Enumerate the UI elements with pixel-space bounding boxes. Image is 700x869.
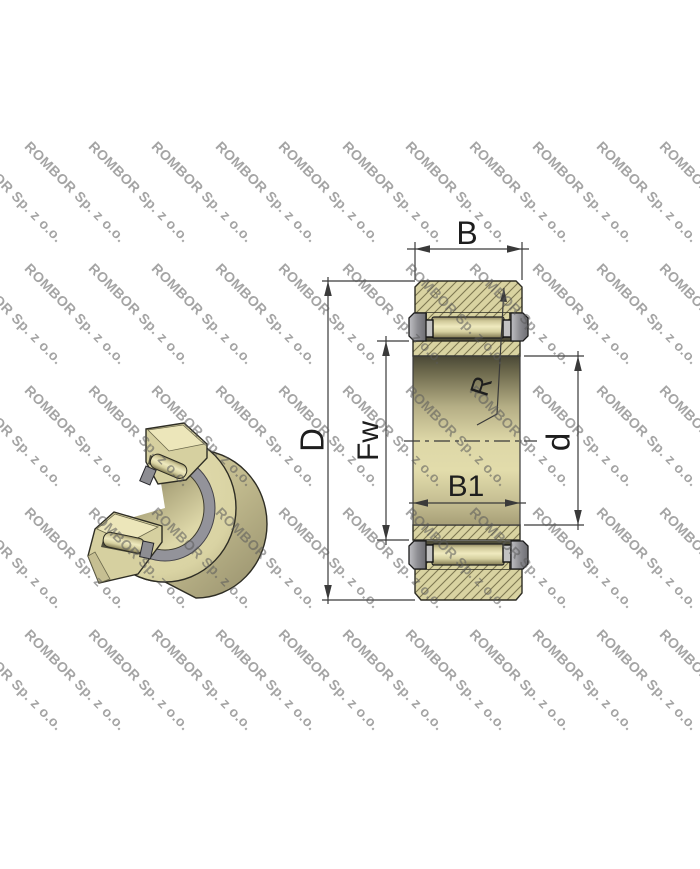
cage-top-right xyxy=(503,320,511,337)
inner-ring-top-section xyxy=(413,341,520,356)
flange-bottom-right xyxy=(511,541,528,569)
outer-ring-top-section xyxy=(415,281,522,313)
label-d: d xyxy=(542,433,575,451)
roller-top xyxy=(432,317,504,338)
outer-ring-bottom-section xyxy=(415,569,522,600)
label-B: B xyxy=(456,217,477,249)
flange-top-right xyxy=(511,313,528,341)
technical-drawing-canvas xyxy=(0,0,700,869)
bearing-drawing-page: B D Fw R d B1 ROMBOR Sp. z o.o.ROMBOR Sp… xyxy=(0,0,700,869)
label-D: D xyxy=(296,428,329,452)
label-B1: B1 xyxy=(448,472,485,502)
flange-bottom-left xyxy=(409,541,426,569)
cage-bottom-right xyxy=(503,545,511,562)
inner-ring-bottom-section xyxy=(413,525,520,540)
bearing-3d-view xyxy=(20,414,267,598)
roller-bottom xyxy=(432,544,504,565)
label-Fw: Fw xyxy=(354,421,384,461)
flange-top-left xyxy=(409,313,426,341)
